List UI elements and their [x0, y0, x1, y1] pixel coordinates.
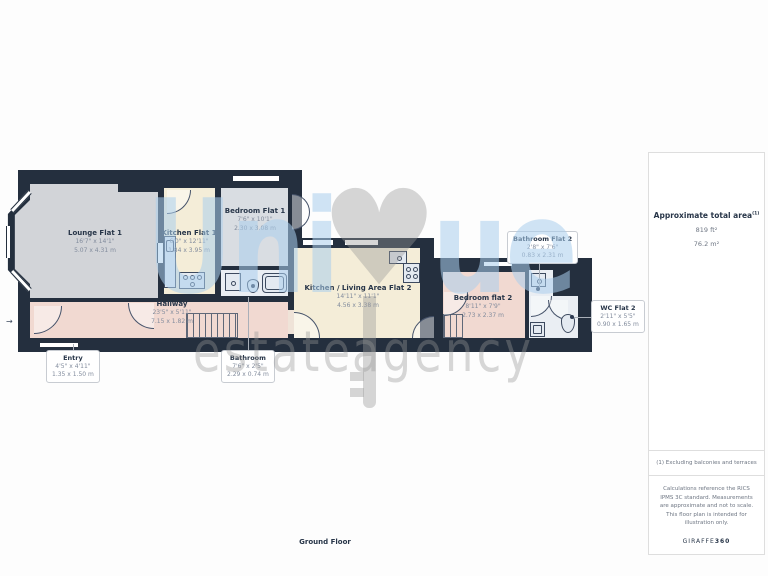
callout-dims-metric: 0.90 x 1.65 m: [597, 321, 639, 329]
total-area-title-text: Approximate total area: [654, 211, 752, 220]
room-dims-metric: 2.30 x 3.08 m: [225, 225, 285, 233]
room-dims-metric: 7.15 x 1.82 m: [151, 318, 193, 326]
total-area-ft: 819 ft²: [649, 226, 764, 234]
living2-window-right: [345, 239, 378, 246]
total-area-footnote-marker: (1): [752, 212, 759, 217]
room-name: Bedroom flat 2: [454, 294, 512, 303]
room-name: Hallway: [151, 300, 193, 309]
callout-bathroom-flat-2: Bathroom Flat 2 2'8" x 7'6" 0.83 x 2.31 …: [507, 231, 578, 264]
callout-dims-metric: 2.29 x 0.74 m: [227, 371, 269, 379]
callout-bathroom: Bathroom 7'6" x 2'5" 2.29 x 0.74 m: [221, 350, 275, 383]
total-area-title: Approximate total area(1): [649, 211, 764, 220]
room-dims-imperial: 14'11" x 11'1": [304, 293, 411, 301]
floor-name-label: Ground Floor: [250, 538, 400, 546]
callout-dims-imperial: 2'11" x 5'5": [597, 313, 639, 321]
giraffe360-logo: GIRAFFE360: [658, 537, 755, 546]
bedroom1-french-door-arc-2: [292, 212, 310, 230]
hallway-stairs: [186, 313, 238, 338]
shower-tray-inner: [533, 325, 542, 334]
wc-leader-dot: [570, 315, 574, 319]
bedroom1-french-door-arc-1: [292, 194, 310, 212]
brand-bold-text: 360: [715, 538, 731, 545]
room-name: Lounge Flat 1: [68, 229, 122, 238]
bay-window-middle: [6, 226, 11, 258]
living2-window-left: [303, 239, 333, 246]
room-name: Bedroom Flat 1: [225, 207, 285, 216]
room-name: Kitchen / Living Area Flat 2: [304, 284, 411, 293]
bathroom1-toilet-dot: [251, 284, 255, 288]
total-area-m: 76.2 m²: [649, 240, 764, 248]
disclaimer-text: Calculations reference the RICS IPMS 3C …: [660, 486, 753, 526]
callout-dims-imperial: 7'6" x 2'5": [227, 363, 269, 371]
watermark-key-tooth-1: [350, 372, 364, 381]
room-dims-imperial: 16'7" x 14'1": [68, 238, 122, 246]
kitchen2-stove: [403, 263, 420, 283]
bedroom1-window: [233, 175, 279, 182]
label-bedroom-flat-1: Bedroom Flat 1 7'6" x 10'1" 2.30 x 3.08 …: [225, 207, 285, 233]
disclaimer-section: Calculations reference the RICS IPMS 3C …: [649, 475, 764, 554]
bathtub-inner: [265, 276, 284, 290]
wc-shower-tray: [530, 322, 545, 337]
callout-name: Bathroom Flat 2: [513, 235, 572, 244]
callout-entry: Entry 4'5" x 4'11" 1.35 x 1.50 m: [46, 350, 100, 383]
callout-name: Entry: [52, 354, 94, 363]
label-kitchen-flat-1: Kitchen Flat 1 6'0" x 12'11" 1.84 x 3.95…: [161, 229, 216, 255]
bathroom1-sink: [225, 273, 241, 291]
room-dims-imperial: 7'6" x 10'1": [225, 216, 285, 224]
room-dims-metric: 1.84 x 3.95 m: [161, 247, 216, 255]
lounge-top-notch: [118, 184, 160, 192]
area-summary-panel: Approximate total area(1) 819 ft² 76.2 m…: [648, 152, 765, 555]
brand-text: GIRAFFE: [683, 538, 715, 545]
kitchen1-stove: [179, 272, 205, 289]
room-dims-imperial: 23'5" x 5'11": [151, 309, 193, 317]
label-bedroom-flat-2: Bedroom flat 2 8'11" x 7'9" 2.73 x 2.37 …: [454, 294, 512, 320]
total-area-section: Approximate total area(1) 819 ft² 76.2 m…: [649, 153, 764, 450]
callout-dims-imperial: 2'8" x 7'6": [513, 244, 572, 252]
bathroom2-leader-dot: [536, 287, 540, 291]
watermark-key-tooth-2: [350, 388, 364, 397]
label-lounge-flat-1: Lounge Flat 1 16'7" x 14'1" 5.07 x 4.31 …: [68, 229, 122, 255]
bathroom-leader-line: [248, 297, 249, 352]
label-hallway: Hallway 23'5" x 5'11" 7.15 x 1.82 m: [151, 300, 193, 326]
room-dims-imperial: 6'0" x 12'11": [161, 238, 216, 246]
callout-wc-flat-2: WC Flat 2 2'11" x 5'5" 0.90 x 1.65 m: [591, 300, 645, 333]
callout-dims-metric: 0.83 x 2.31 m: [513, 252, 572, 260]
callout-name: WC Flat 2: [597, 304, 639, 313]
callout-dims-imperial: 4'5" x 4'11": [52, 363, 94, 371]
room-dims-imperial: 8'11" x 7'9": [454, 303, 512, 311]
room-name: Kitchen Flat 1: [161, 229, 216, 238]
entrance-arrow: →: [6, 317, 13, 326]
room-dims-metric: 2.73 x 2.37 m: [454, 312, 512, 320]
room-dims-metric: 4.56 x 3.38 m: [304, 302, 411, 310]
callout-name: Bathroom: [227, 354, 269, 363]
bathroom2-leader-line: [539, 263, 540, 289]
footnote-section: (1) Excluding balconies and terraces: [649, 450, 764, 475]
callout-dims-metric: 1.35 x 1.50 m: [52, 371, 94, 379]
room-dims-metric: 5.07 x 4.31 m: [68, 247, 122, 255]
floorplan-page: { "watermark": { "uni": "Uni", "ue": "ue…: [0, 0, 768, 576]
bathroom1-bathtub: [262, 273, 287, 293]
label-kitchen-living-flat-2: Kitchen / Living Area Flat 2 14'11" x 11…: [304, 284, 411, 310]
wc-leader-line: [574, 317, 592, 318]
